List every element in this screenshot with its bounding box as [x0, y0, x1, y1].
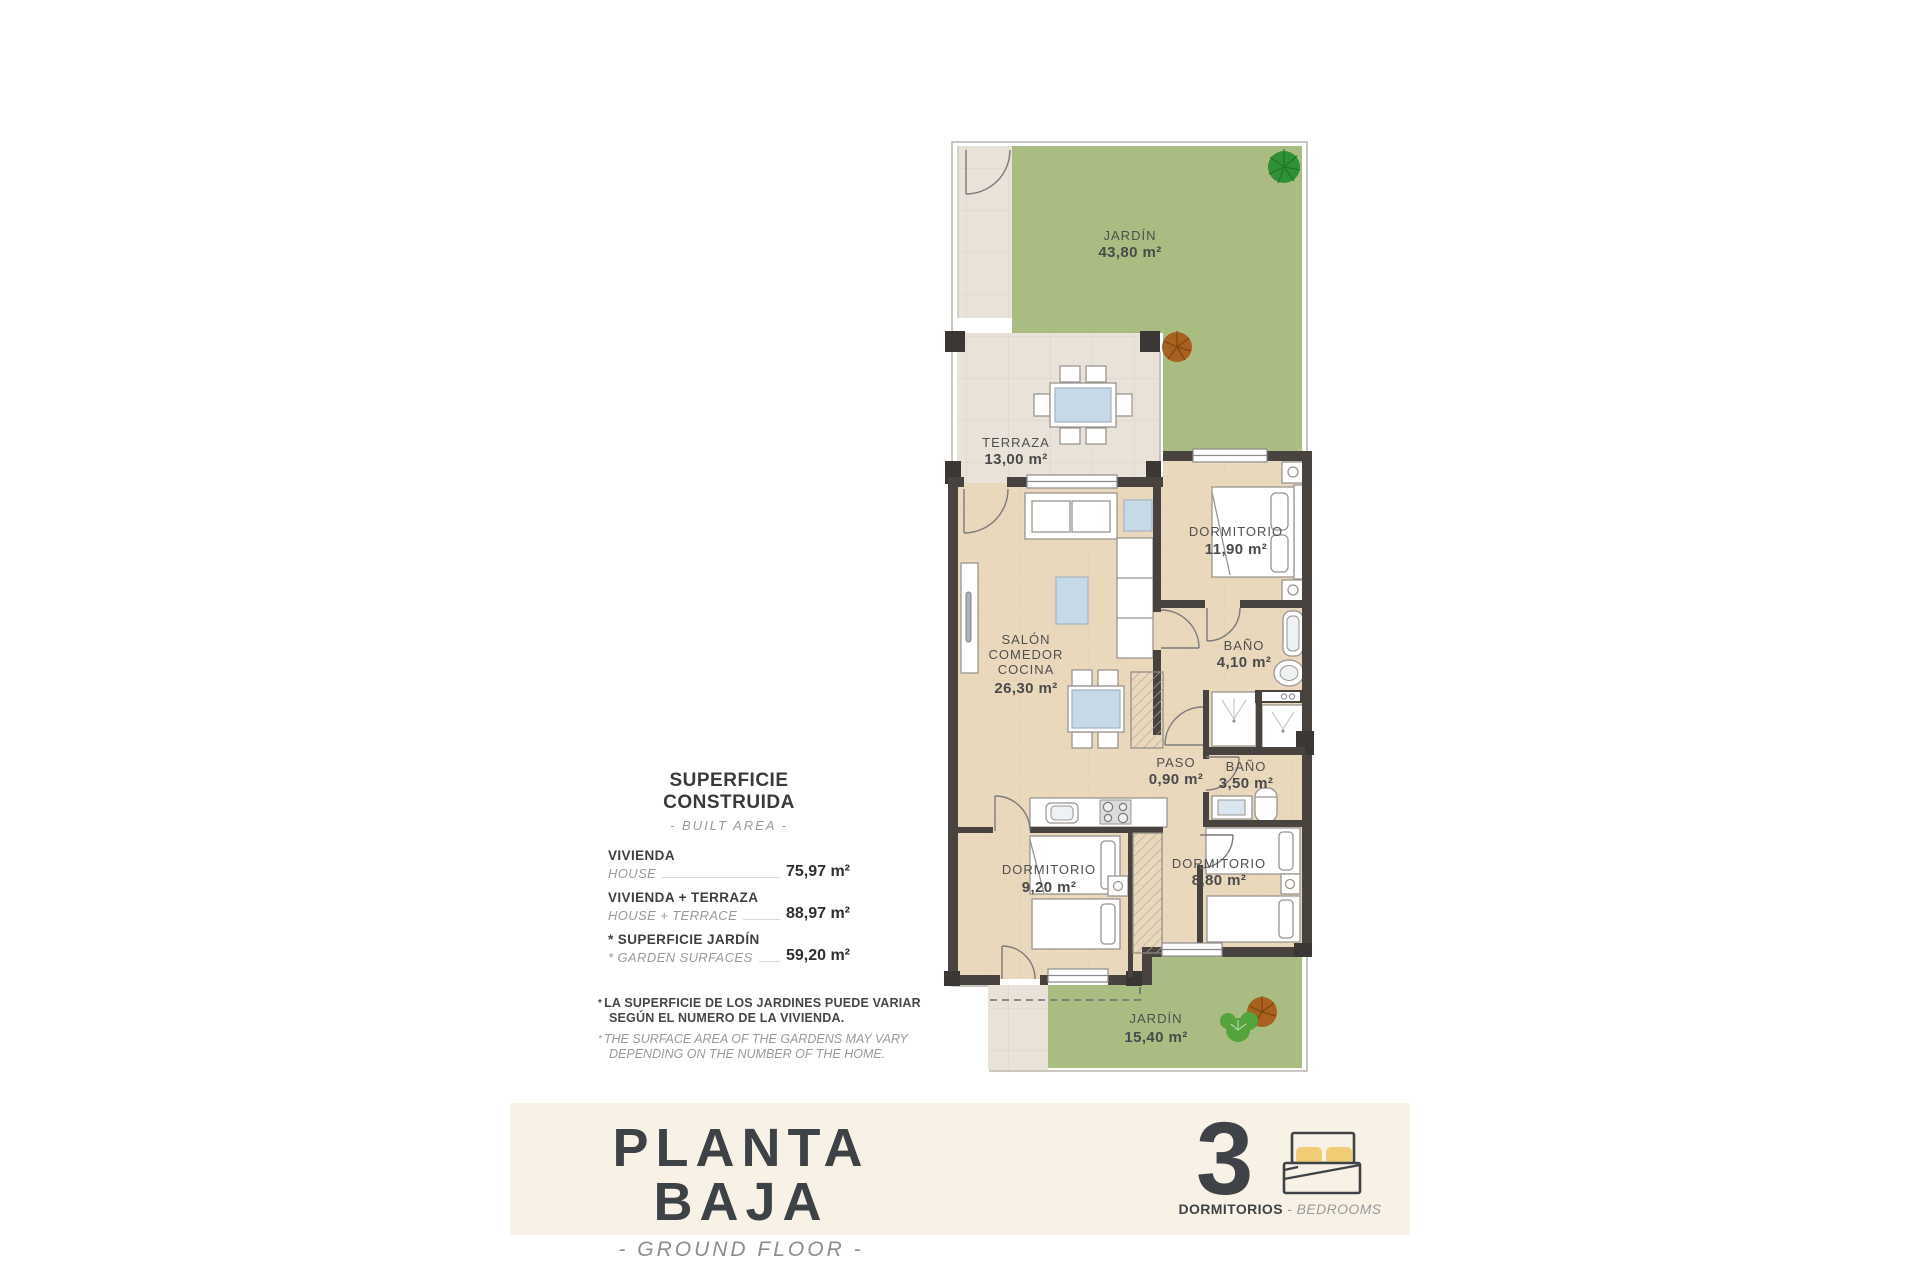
- floor-plan: JARDÍN 43,80 m² TERRAZA 13,00 m² DORMITO…: [940, 130, 1340, 1080]
- salon-sofa: [1025, 493, 1117, 539]
- label-terraza: TERRAZA: [982, 435, 1050, 450]
- label-bano2: BAÑO: [1226, 759, 1267, 774]
- label-bano1: BAÑO: [1224, 638, 1265, 653]
- area-terraza: 13,00 m²: [984, 451, 1047, 468]
- area-dorm3: 8,80 m²: [1192, 872, 1247, 889]
- row-label-en: HOUSE: [608, 866, 656, 881]
- leader-line: [662, 877, 780, 878]
- area-garden-bottom: 15,40 m²: [1124, 1029, 1187, 1046]
- surface-row-garden: * SUPERFICIE JARDÍN * GARDEN SURFACES 59…: [608, 932, 850, 965]
- footnote-es-line1: LA SUPERFICIE DE LOS JARDINES PUEDE VARI…: [604, 996, 921, 1010]
- row-value: 88,97 m²: [786, 905, 850, 923]
- bed-icon: [1268, 1130, 1368, 1200]
- footnote-en: *THE SURFACE AREA OF THE GARDENS MAY VAR…: [598, 1032, 943, 1062]
- window-bedroom-920: [1048, 969, 1108, 982]
- surface-row-house-terrace: VIVIENDA + TERRAZA HOUSE + TERRACE 88,97…: [608, 890, 850, 923]
- row-value: 75,97 m²: [786, 863, 850, 881]
- label-salon-3: COCINA: [998, 662, 1055, 677]
- surface-row-house: VIVIENDA HOUSE 75,97 m²: [608, 848, 850, 881]
- row-label-es: VIVIENDA + TERRAZA: [608, 890, 850, 905]
- footnote-en-line1: THE SURFACE AREA OF THE GARDENS MAY VARY: [604, 1032, 908, 1046]
- footer-title-block: PLANTA BAJA - GROUND FLOOR -: [541, 1121, 941, 1262]
- area-paso: 0,90 m²: [1149, 771, 1204, 788]
- coffee-table: [1056, 577, 1088, 624]
- footnote-en-line2: DEPENDING ON THE NUMBER OF THE HOME.: [598, 1047, 943, 1062]
- window-bedroom-880: [1162, 943, 1222, 956]
- footnote-star: *: [598, 1034, 602, 1045]
- floor-title: PLANTA BAJA: [541, 1121, 941, 1229]
- floor-subtitle: - GROUND FLOOR -: [541, 1238, 941, 1262]
- label-dorm2: DORMITORIO: [1002, 862, 1096, 877]
- shower-left: [1212, 692, 1256, 746]
- surface-title: SUPERFICIE CONSTRUIDA: [608, 770, 850, 814]
- surface-subtitle: - BUILT AREA -: [608, 818, 850, 833]
- bedrooms-label-es: DORMITORIOS: [1178, 1201, 1282, 1217]
- garden-footnote: *LA SUPERFICIE DE LOS JARDINES PUEDE VAR…: [598, 996, 943, 1062]
- area-dorm2: 9,20 m²: [1022, 879, 1077, 896]
- label-salon-2: COMEDOR: [989, 647, 1064, 662]
- bedrooms-count: 3: [1196, 1107, 1253, 1210]
- salon-chaise: [1117, 538, 1153, 658]
- area-salon: 26,30 m²: [994, 680, 1057, 697]
- area-bano2: 3,50 m²: [1219, 775, 1274, 792]
- area-dorm-main: 11,90 m²: [1205, 541, 1267, 558]
- label-dorm-main: DORMITORIO: [1189, 524, 1283, 539]
- washer-nook: [1262, 692, 1300, 701]
- label-garden-top: JARDÍN: [1104, 228, 1157, 243]
- kitchen-counter: [1030, 798, 1167, 827]
- area-bano1: 4,10 m²: [1217, 654, 1272, 671]
- kitchen-column-wardrobe: [1131, 672, 1163, 748]
- label-dorm3: DORMITORIO: [1172, 856, 1266, 871]
- label-garden-bottom: JARDÍN: [1130, 1011, 1183, 1026]
- leader-line: [759, 961, 780, 962]
- surface-panel: SUPERFICIE CONSTRUIDA - BUILT AREA - VIV…: [608, 770, 850, 974]
- row-label-es: VIVIENDA: [608, 848, 850, 863]
- salon-side-table: [1124, 500, 1152, 531]
- walkway-bottom: [988, 985, 1048, 1070]
- footnote-es-line2: SEGÚN EL NUMERO DE LA VIVIENDA.: [598, 1011, 943, 1026]
- bedrooms-label-en: BEDROOMS: [1297, 1201, 1382, 1217]
- footer-bar: PLANTA BAJA - GROUND FLOOR - 3 DORMITORI…: [510, 1103, 1410, 1235]
- window-main-bedroom: [1193, 449, 1267, 462]
- page: SUPERFICIE CONSTRUIDA - BUILT AREA - VIV…: [0, 0, 1920, 1280]
- leader-line: [743, 919, 780, 920]
- surface-rows: VIVIENDA HOUSE 75,97 m² VIVIENDA + TERRA…: [608, 848, 850, 965]
- row-value: 59,20 m²: [786, 947, 850, 965]
- label-salon-1: SALÓN: [1001, 632, 1050, 647]
- row-label-en: * GARDEN SURFACES: [608, 950, 753, 965]
- bedrooms-label: DORMITORIOS - BEDROOMS: [1160, 1201, 1400, 1217]
- label-paso: PASO: [1156, 755, 1195, 770]
- window-salon-terrace: [1027, 475, 1117, 488]
- row-label-es: * SUPERFICIE JARDÍN: [608, 932, 850, 947]
- tv-unit: [961, 563, 978, 673]
- hallway-wardrobe: [1133, 833, 1162, 953]
- bedrooms-label-sep: -: [1283, 1201, 1297, 1217]
- area-garden-top: 43,80 m²: [1098, 244, 1161, 261]
- row-label-en: HOUSE + TERRACE: [608, 908, 737, 923]
- footnote-es: *LA SUPERFICIE DE LOS JARDINES PUEDE VAR…: [598, 996, 943, 1026]
- footnote-star: *: [598, 998, 602, 1009]
